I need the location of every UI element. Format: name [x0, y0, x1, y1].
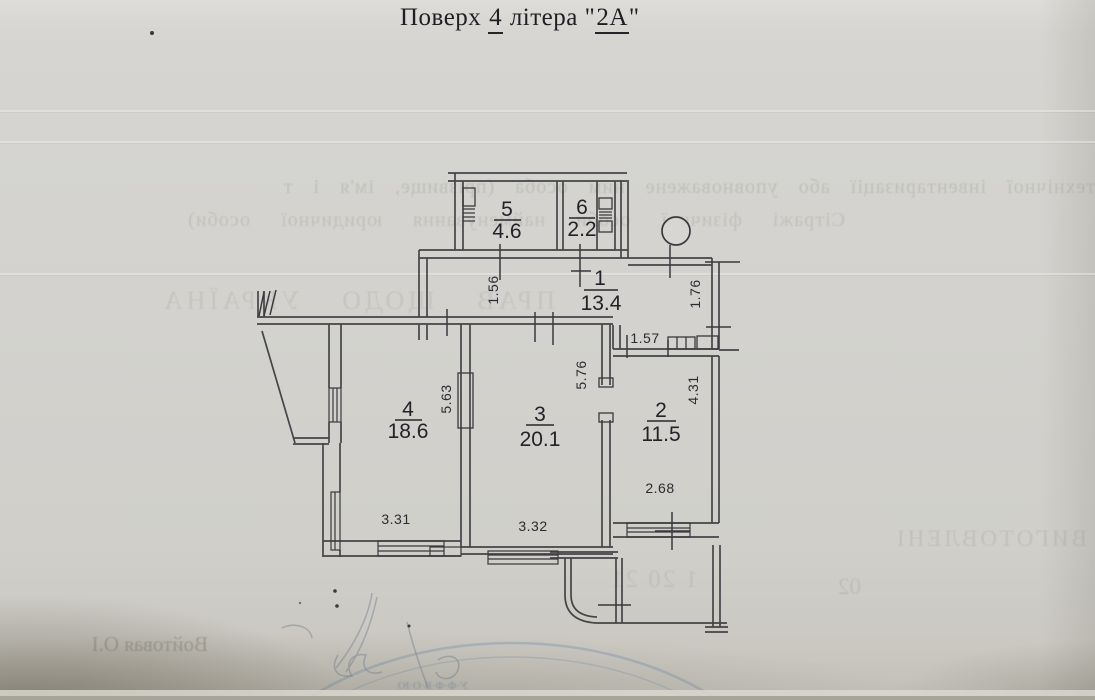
window-symbols — [329, 388, 690, 564]
pencil-scribbles — [282, 593, 459, 688]
title-floor-number: 4 — [488, 4, 503, 34]
room-number: 1 — [594, 267, 606, 290]
page-bottom-edge-dark — [0, 696, 1095, 700]
dim-vent-niche: 1.57 — [630, 330, 659, 346]
dim-room3-width: 3.32 — [518, 518, 547, 534]
room-1-label: 1 13.4 — [581, 267, 622, 315]
room-area: 18.6 — [388, 420, 429, 443]
room-2-label: 2 11.5 — [641, 399, 680, 446]
room-area: 20.1 — [520, 428, 561, 451]
dim-room3-depth: 5.76 — [573, 360, 589, 389]
room-number: 2 — [655, 399, 667, 422]
dim-hall-right: 1.76 — [687, 279, 703, 308]
room-area: 11.5 — [641, 423, 680, 446]
room-area: 2.2 — [567, 218, 596, 241]
dim-room4-width: 3.31 — [381, 511, 410, 527]
room-3-label: 3 20.1 — [520, 403, 561, 451]
room-area: 13.4 — [581, 292, 622, 315]
dim-room2-depth: 4.31 — [685, 375, 701, 404]
room-number: 3 — [534, 403, 546, 426]
dim-balcony-width: 2.68 — [645, 480, 674, 496]
room-5-label: 5 4.6 — [492, 198, 521, 243]
title-close-quote: " — [629, 4, 640, 31]
room-number: 5 — [501, 198, 513, 221]
floor-plan: 5 4.6 6 2.2 1 13.4 4 18.6 3 20.1 2 11.5 — [0, 0, 1095, 700]
title-open-quote: " — [585, 4, 596, 31]
ink-dots — [150, 31, 411, 628]
page-title: Поверх 4 літера "2А" — [400, 4, 640, 32]
title-word-letter: літера — [510, 4, 578, 31]
title-word-floor: Поверх — [400, 4, 481, 31]
dim-corridor-width: 1.56 — [485, 275, 501, 304]
column-circle — [662, 217, 690, 245]
room-area: 4.6 — [492, 220, 521, 243]
room-number: 4 — [402, 398, 414, 421]
title-letter-value: 2А — [595, 4, 629, 34]
dim-room4-depth: 5.63 — [438, 384, 454, 413]
room-number: 6 — [576, 196, 588, 219]
room-4-label: 4 18.6 — [388, 398, 429, 443]
scanned-floor-plan-page: технічної інвентаризації або уповноважен… — [0, 0, 1095, 700]
room-6-label: 6 2.2 — [567, 196, 596, 241]
